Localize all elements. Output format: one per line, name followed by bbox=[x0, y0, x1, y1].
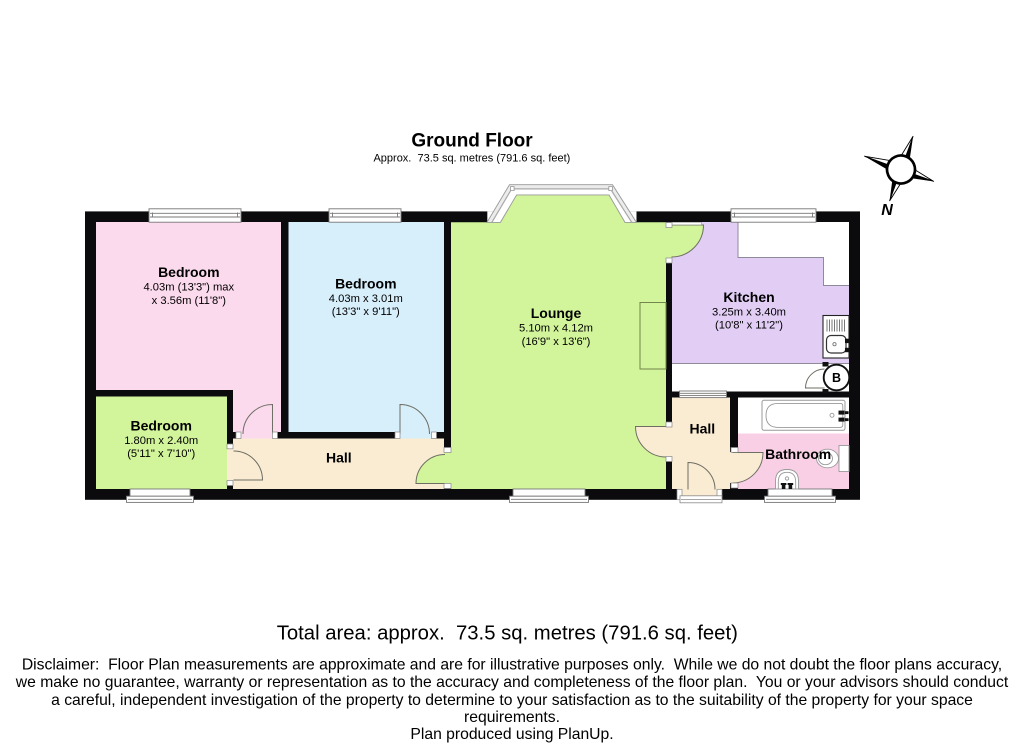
svg-text:Bedroom: Bedroom bbox=[335, 275, 396, 291]
svg-text:x 3.56m (11'8"): x 3.56m (11'8") bbox=[152, 295, 227, 307]
svg-text:(13'3" x 9'11"): (13'3" x 9'11") bbox=[332, 306, 400, 318]
svg-text:1.80m x 2.40m: 1.80m x 2.40m bbox=[124, 435, 198, 447]
svg-text:B: B bbox=[832, 371, 841, 385]
svg-text:4.03m (13'3") max: 4.03m (13'3") max bbox=[143, 282, 234, 294]
svg-text:Bedroom: Bedroom bbox=[158, 264, 219, 280]
svg-text:(5'11" x 7'10"): (5'11" x 7'10") bbox=[127, 448, 195, 460]
svg-text:Hall: Hall bbox=[689, 420, 715, 436]
svg-text:Bedroom: Bedroom bbox=[130, 417, 191, 433]
svg-text:(16'9" x 13'6"): (16'9" x 13'6") bbox=[522, 336, 591, 348]
svg-text:Approx. 73.5 sq. metres (791.: Approx. 73.5 sq. metres (791.6 sq. feet) bbox=[373, 153, 570, 165]
svg-text:(10'8" x 11'2"): (10'8" x 11'2") bbox=[715, 320, 783, 332]
svg-text:Bathroom: Bathroom bbox=[765, 446, 831, 462]
svg-text:4.03m x 3.01m: 4.03m x 3.01m bbox=[329, 293, 403, 305]
svg-text:Lounge: Lounge bbox=[531, 305, 582, 321]
svg-text:Disclaimer: Floor Plan measur: Disclaimer: Floor Plan measurements are … bbox=[22, 656, 1002, 673]
svg-text:5.10m x 4.12m: 5.10m x 4.12m bbox=[519, 323, 593, 335]
svg-text:a careful, independent investi: a careful, independent investigation of … bbox=[51, 692, 973, 709]
svg-text:requirements.: requirements. bbox=[464, 709, 560, 726]
svg-text:Hall: Hall bbox=[326, 450, 352, 466]
svg-text:N: N bbox=[881, 202, 893, 219]
svg-text:Plan produced using PlanUp.: Plan produced using PlanUp. bbox=[410, 726, 613, 743]
svg-text:3.25m x 3.40m: 3.25m x 3.40m bbox=[712, 306, 786, 318]
svg-text:Kitchen: Kitchen bbox=[723, 289, 774, 305]
svg-text:Total area: approx. 73.5 sq.: Total area: approx. 73.5 sq. metres (791… bbox=[277, 622, 738, 644]
svg-text:we make no guarantee, warranty: we make no guarantee, warranty or repres… bbox=[15, 674, 1009, 691]
svg-text:Ground Floor: Ground Floor bbox=[411, 130, 533, 151]
